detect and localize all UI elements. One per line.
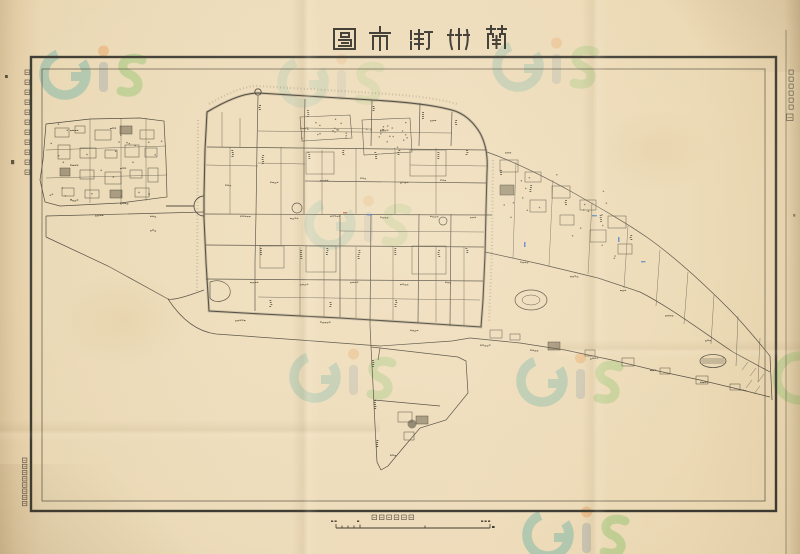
scale-bar: [331, 515, 495, 528]
city-wall: [204, 93, 487, 327]
city-map: [40, 86, 772, 470]
round-feature-west: [292, 203, 302, 213]
gis-watermark-icon: [777, 356, 800, 400]
right-margin-note: [787, 70, 794, 121]
title-char-jie: [411, 30, 432, 49]
oval-enclosure: [515, 290, 547, 310]
map-canvas: [0, 0, 800, 554]
gis-watermark-icon: [286, 348, 392, 406]
title-char-zhou: [448, 29, 469, 49]
rampart-hatch: [197, 86, 493, 322]
left-margin-note: [25, 70, 30, 175]
major-streets: [205, 96, 492, 326]
watermark-layer: [36, 37, 800, 554]
title-char-shi2: [370, 27, 390, 50]
round-feature-east: [439, 217, 447, 225]
gis-watermark-icon: [513, 352, 619, 410]
gis-watermark-icon: [301, 195, 407, 253]
gis-watermark-icon: [519, 506, 625, 554]
building-blocks: [55, 126, 740, 440]
pond: [700, 355, 726, 368]
title-char-lan: [487, 26, 506, 48]
tree-dots: [50, 118, 616, 259]
title-char-tu: [334, 29, 355, 49]
sw-garden: [210, 281, 230, 302]
scale-label: [372, 515, 414, 520]
map-title: [334, 26, 506, 50]
bottom-left-imprint: [23, 458, 27, 506]
city-compounds: [260, 150, 446, 274]
scale-tick-numerals: [331, 521, 495, 529]
western-suburb-outline: [40, 118, 167, 206]
map-sheet: [0, 0, 800, 554]
city-wall-shadow: [204, 93, 487, 327]
gis-watermark-icon: [274, 53, 380, 111]
gis-watermark-icon: [36, 45, 142, 103]
